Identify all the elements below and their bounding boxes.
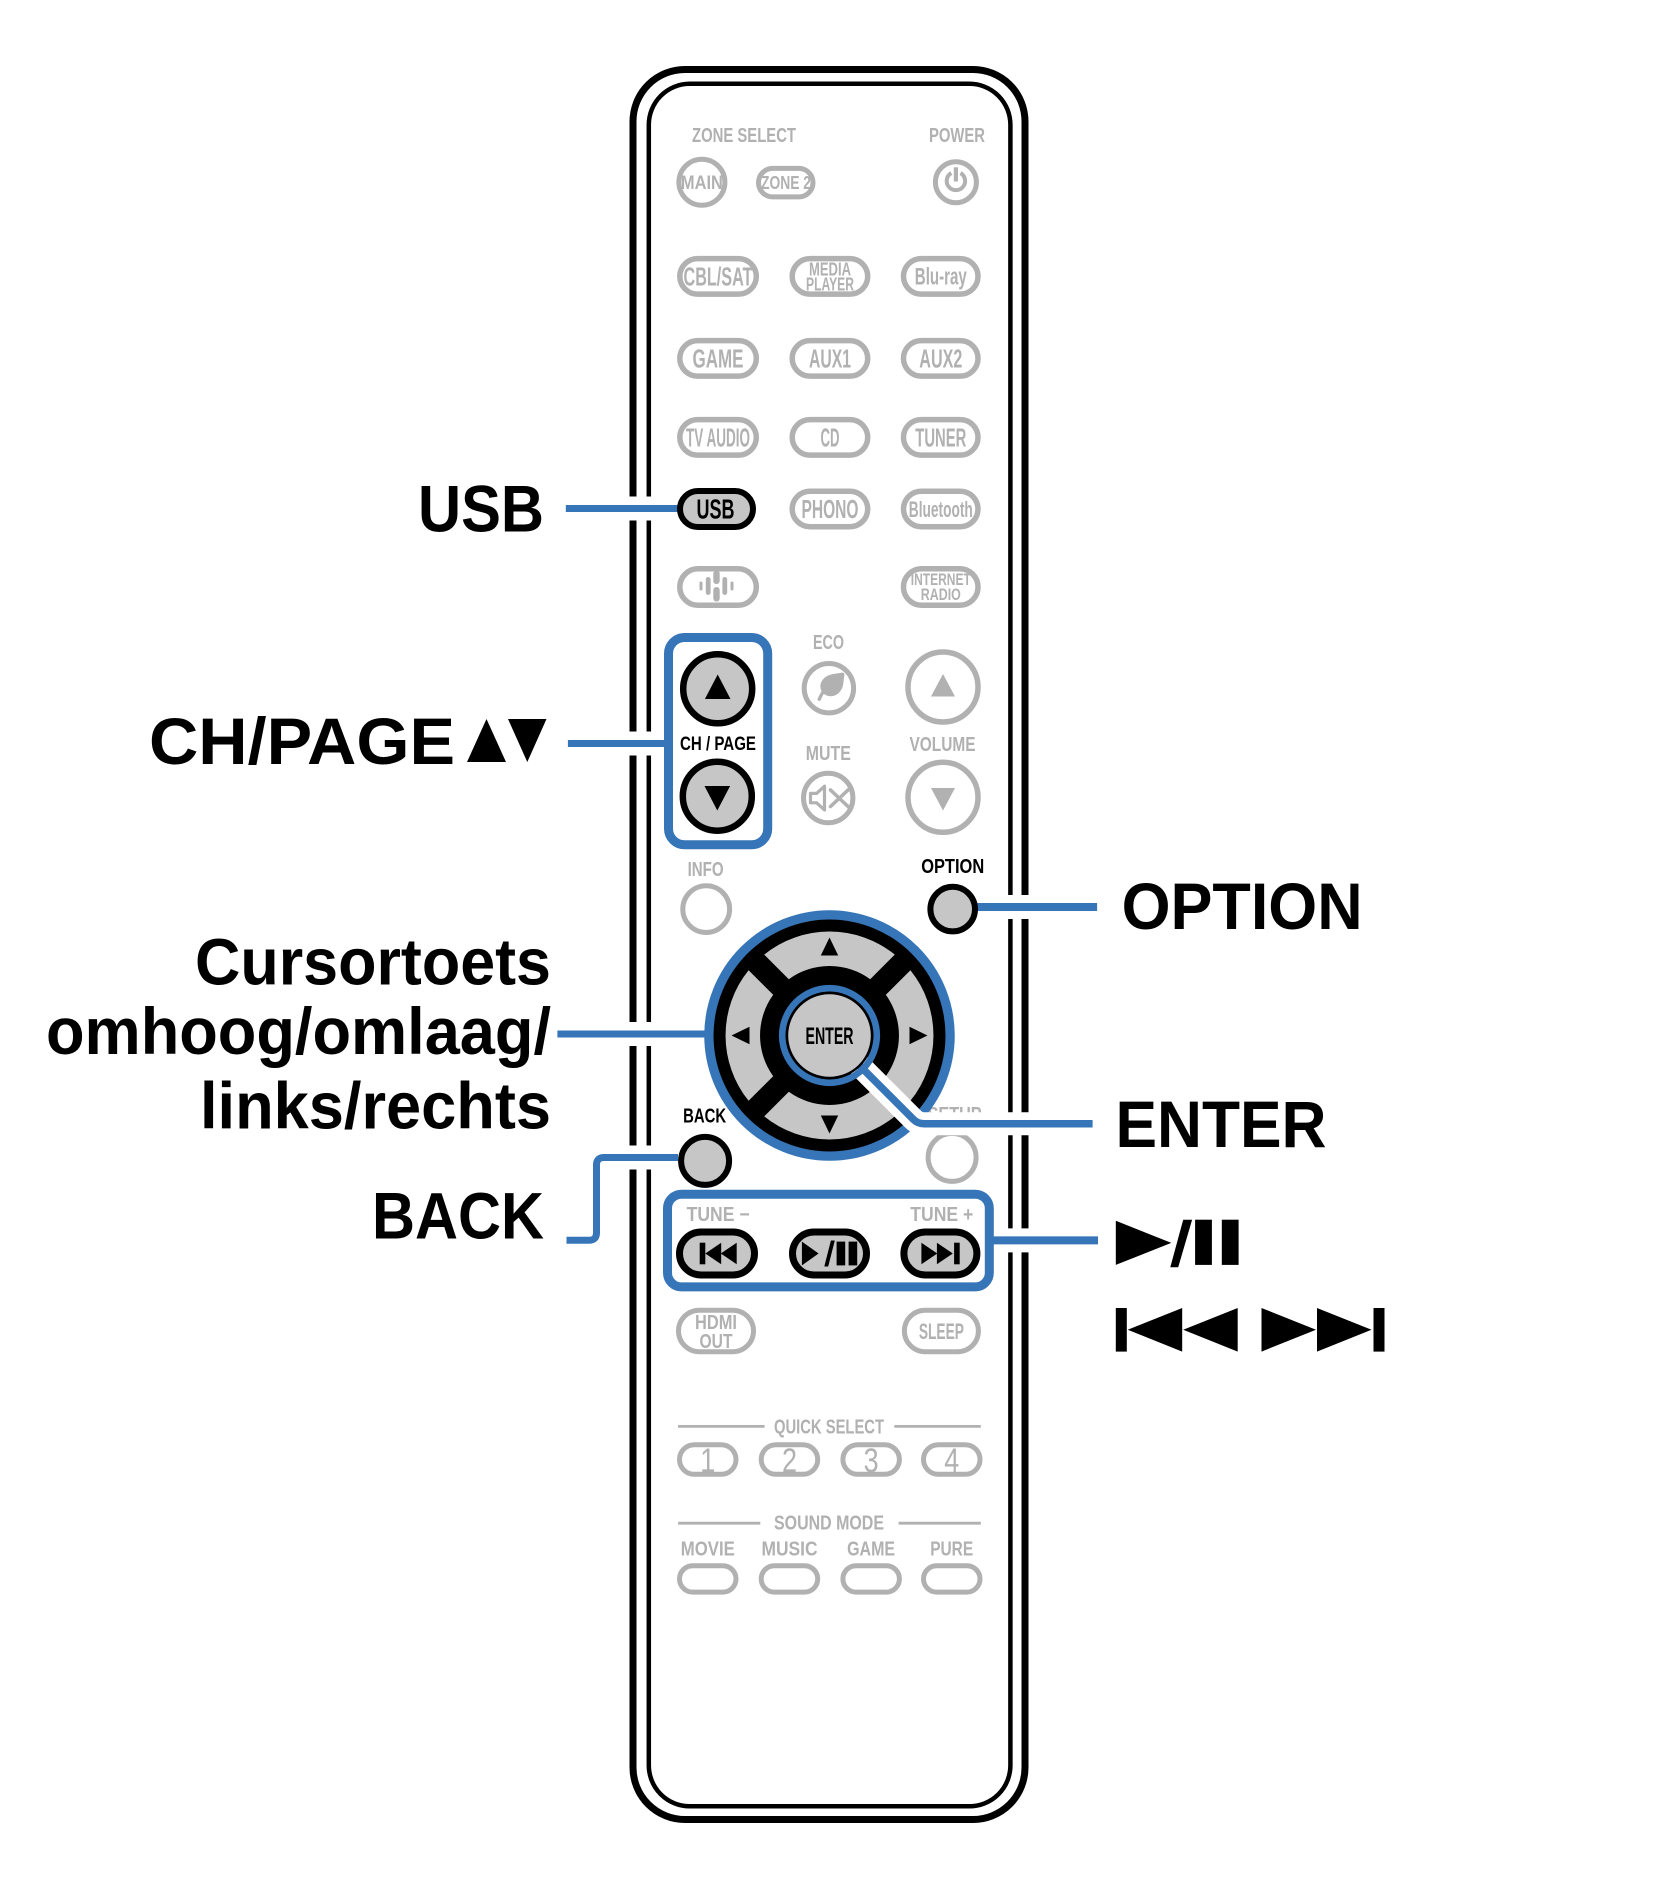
svg-text:OPTION: OPTION [921,856,984,878]
svg-text:TUNE +: TUNE + [910,1204,973,1226]
svg-text:CBL/SAT: CBL/SAT [684,261,753,291]
svg-text:ZONE 2: ZONE 2 [761,173,811,193]
svg-text:USB: USB [697,494,735,525]
svg-text:VOLUME: VOLUME [910,734,976,756]
svg-text:PURE: PURE [930,1539,973,1561]
svg-text:BACK: BACK [372,1178,544,1252]
svg-text:CH / PAGE: CH / PAGE [680,733,756,755]
svg-text:PLAYER: PLAYER [806,275,854,295]
svg-text:INFO: INFO [688,859,724,881]
svg-text:TV AUDIO: TV AUDIO [686,422,750,452]
svg-text:USB: USB [418,472,544,546]
svg-text:ENTER: ENTER [1116,1087,1327,1161]
svg-text:3: 3 [864,1442,879,1480]
svg-text:AUX2: AUX2 [919,343,962,373]
svg-text:MUSIC: MUSIC [762,1539,818,1561]
svg-text:PHONO: PHONO [802,494,859,524]
svg-text:ZONE SELECT: ZONE SELECT [692,125,796,147]
svg-text:RADIO: RADIO [921,585,961,604]
svg-text:OPTION: OPTION [1122,869,1363,943]
svg-text:2: 2 [782,1442,797,1480]
svg-text:ENTER: ENTER [806,1023,854,1050]
svg-text:SLEEP: SLEEP [919,1319,964,1344]
svg-text:TUNE −: TUNE − [687,1204,750,1226]
svg-text:omhoog/omlaag/: omhoog/omlaag/ [46,994,551,1068]
svg-text:MOVIE: MOVIE [681,1539,735,1561]
svg-text:4: 4 [944,1442,959,1480]
svg-text:SOUND MODE: SOUND MODE [774,1513,884,1535]
svg-text:TUNER: TUNER [915,422,966,452]
svg-text:CH/PAGE: CH/PAGE [149,704,455,778]
svg-text:MAIN: MAIN [681,173,723,194]
svg-text:ECO: ECO [813,632,844,654]
svg-text:QUICK SELECT: QUICK SELECT [774,1417,884,1439]
svg-text:POWER: POWER [929,125,985,147]
svg-text:Cursortoets: Cursortoets [195,925,551,999]
svg-text:MUTE: MUTE [806,743,851,765]
svg-text:BACK: BACK [683,1106,726,1128]
svg-text:links/rechts: links/rechts [200,1068,551,1142]
svg-text:1: 1 [700,1442,715,1480]
svg-text:AUX1: AUX1 [809,343,851,373]
svg-text:CD: CD [821,422,840,452]
svg-text:OUT: OUT [700,1331,733,1353]
svg-text:GAME: GAME [693,343,744,373]
svg-text:GAME: GAME [847,1539,895,1561]
svg-text:Bluetooth: Bluetooth [909,497,973,522]
svg-text:Blu-ray: Blu-ray [915,263,967,290]
